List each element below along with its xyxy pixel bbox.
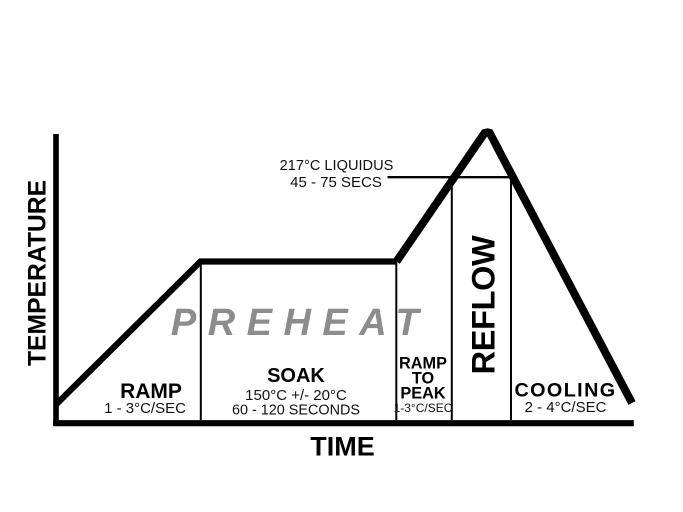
svg-text:45 - 75 SECS: 45 - 75 SECS bbox=[290, 174, 382, 191]
svg-text:2 - 4°C/SEC: 2 - 4°C/SEC bbox=[525, 399, 607, 416]
svg-text:217°C LIQUIDUS: 217°C LIQUIDUS bbox=[280, 158, 394, 174]
svg-text:COOLING: COOLING bbox=[514, 379, 616, 401]
svg-text:TIME: TIME bbox=[310, 432, 375, 462]
svg-text:150°C +/- 20°C: 150°C +/- 20°C bbox=[245, 387, 347, 404]
svg-text:60 - 120 SECONDS: 60 - 120 SECONDS bbox=[232, 403, 360, 419]
svg-text:1 - 3°C/SEC: 1 - 3°C/SEC bbox=[104, 400, 186, 417]
svg-text:TEMPERATURE: TEMPERATURE bbox=[25, 180, 52, 366]
svg-text:PREHEAT: PREHEAT bbox=[171, 302, 430, 344]
svg-text:REFLOW: REFLOW bbox=[465, 235, 501, 374]
svg-text:PEAK: PEAK bbox=[400, 385, 445, 403]
svg-text:SOAK: SOAK bbox=[267, 365, 325, 387]
svg-text:1-3°C/SEC: 1-3°C/SEC bbox=[394, 401, 453, 415]
